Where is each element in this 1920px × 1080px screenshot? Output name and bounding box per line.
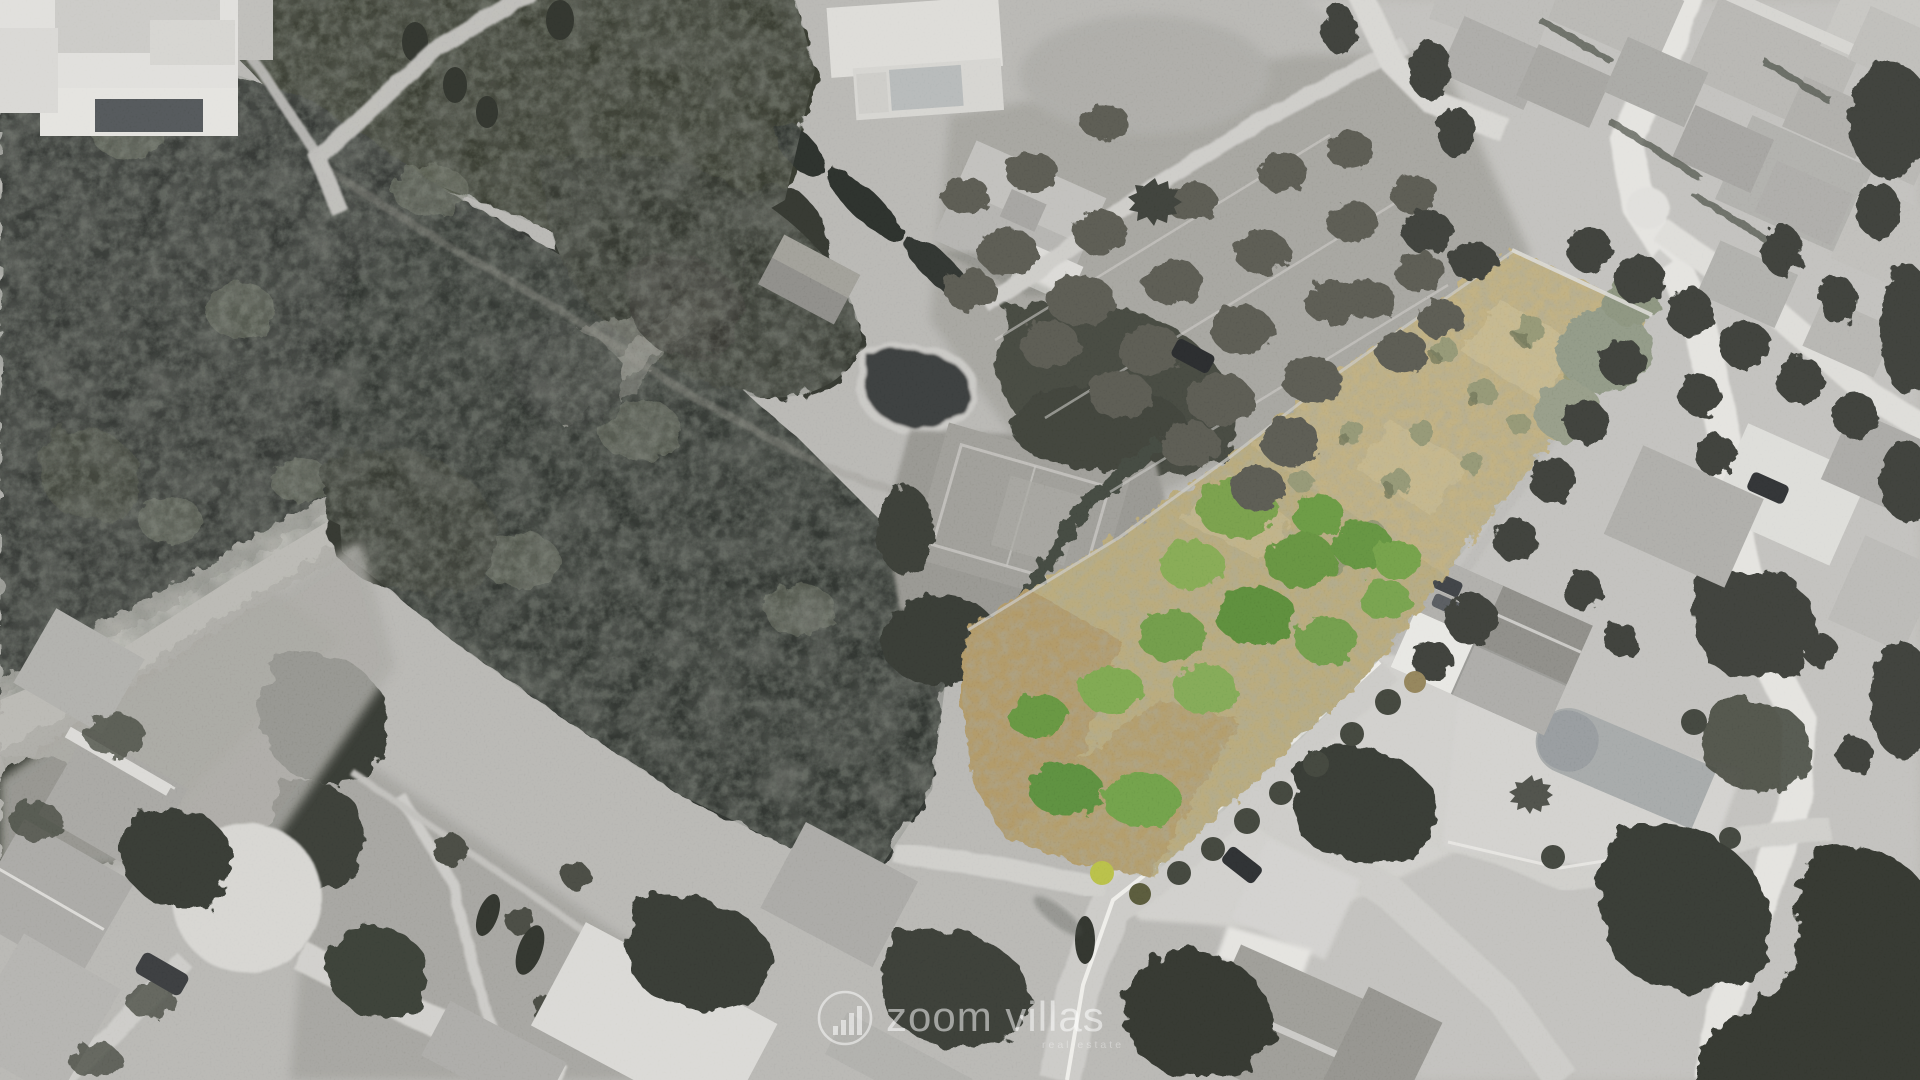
svg-text:zoom villas: zoom villas [886,993,1105,1040]
svg-text:real estate: real estate [1042,1039,1124,1051]
